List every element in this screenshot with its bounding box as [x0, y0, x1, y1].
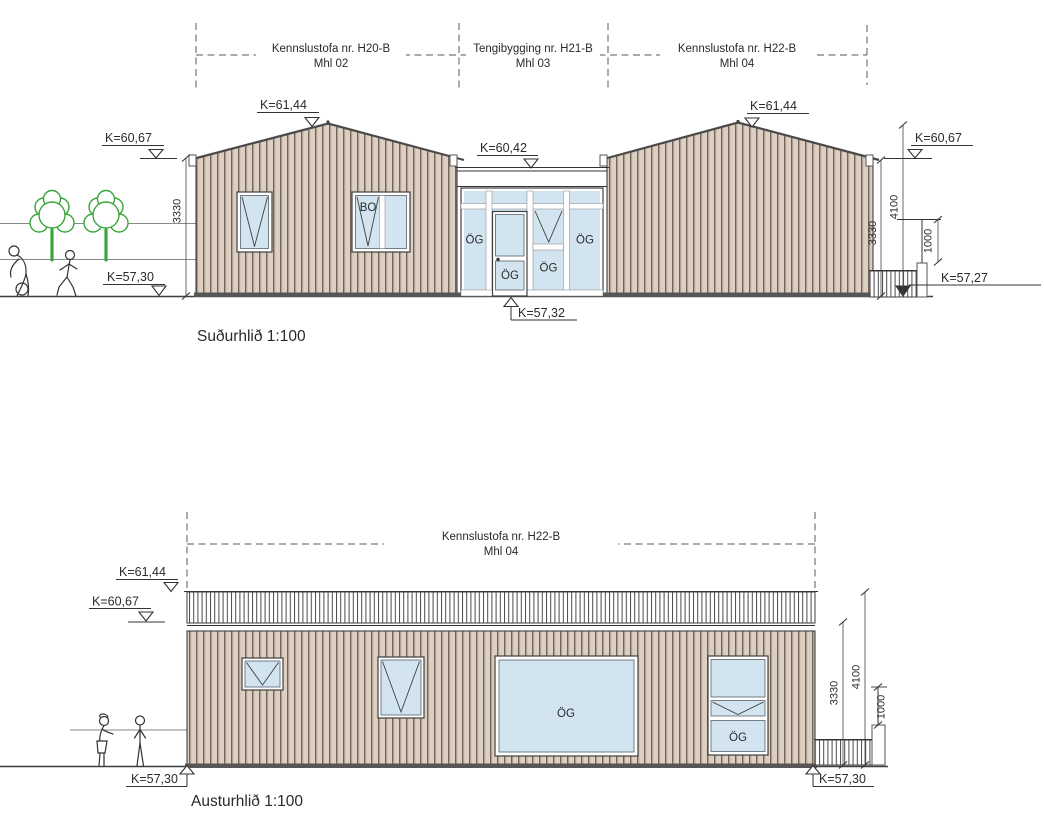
- dimension-label: 3330: [172, 199, 184, 223]
- tree-figure: [30, 191, 74, 261]
- east-elevation-title: Austurhlið 1:100: [191, 793, 303, 810]
- level-label: K=57,30: [131, 772, 178, 786]
- dimension-label: 1000: [876, 695, 888, 719]
- section-label-h22b: Kennslustofa nr. H22-B: [442, 531, 561, 543]
- east-building: ÖG ÖG: [184, 592, 818, 766]
- parapet-band: [187, 592, 815, 623]
- section-label-h22b: Kennslustofa nr. H22-B: [678, 43, 797, 55]
- glazing-label: ÖG: [576, 235, 594, 247]
- level-label: K=60,42: [480, 141, 527, 155]
- door-handle: [496, 258, 499, 261]
- entrance-door: [493, 212, 528, 297]
- section-label-h21b: Tengibygging nr. H21-B: [473, 43, 593, 55]
- south-elevation-title: Suðurhlið 1:100: [197, 328, 306, 345]
- window: ÖG: [708, 656, 768, 755]
- section-sublabel-mhl04: Mhl 04: [484, 546, 519, 558]
- dimension-label: 3330: [867, 221, 879, 245]
- window: [242, 658, 283, 690]
- glazing-label: ÖG: [501, 270, 519, 282]
- child-figure: [9, 246, 29, 296]
- child-figure: [97, 714, 113, 766]
- east-section-grid: Kennslustofa nr. H22-B Mhl 04: [187, 512, 815, 590]
- level-label: K=61,44: [260, 98, 307, 112]
- level-label: K=60,67: [105, 131, 152, 145]
- section-label-h20b: Kennslustofa nr. H20-B: [272, 43, 391, 55]
- south-right-building: [600, 120, 879, 296]
- level-label: K=60,67: [915, 131, 962, 145]
- section-sublabel-mhl04: Mhl 04: [720, 58, 755, 70]
- glazing-label: ÖG: [729, 732, 747, 744]
- level-label: K=61,44: [119, 565, 166, 579]
- south-connector: ÖG ÖG ÖG ÖG: [455, 168, 609, 297]
- dimension-label: 3330: [829, 681, 841, 705]
- level-label: K=61,44: [750, 99, 797, 113]
- east-ramp-railing: [814, 687, 885, 765]
- elevation-drawings: Kennslustofa nr. H20-B Mhl 02 Tengibyggi…: [0, 0, 1044, 833]
- dimension-label: 4100: [851, 665, 863, 689]
- east-elevation: Kennslustofa nr. H22-B Mhl 04: [0, 512, 888, 810]
- dimension-label: 4100: [889, 195, 901, 219]
- glazing-label: ÖG: [466, 235, 484, 247]
- south-section-grid: Kennslustofa nr. H20-B Mhl 02 Tengibyggi…: [196, 23, 867, 88]
- level-label: K=57,30: [819, 772, 866, 786]
- glazing-label: ÖG: [540, 263, 558, 275]
- east-base-band: [185, 764, 817, 769]
- south-left-building: BO: [189, 120, 464, 296]
- level-label: K=60,67: [92, 595, 139, 609]
- window-label-bo: BO: [360, 202, 377, 214]
- tree-figure: [84, 191, 128, 261]
- window-large: ÖG: [495, 656, 638, 756]
- window: BO: [352, 192, 410, 252]
- child-figure: [135, 716, 146, 766]
- level-label: K=57,30: [107, 270, 154, 284]
- dimension-label: 1000: [923, 229, 935, 253]
- level-label: K=57,27: [941, 271, 988, 285]
- section-sublabel-mhl03: Mhl 03: [516, 58, 551, 70]
- window: [378, 657, 424, 718]
- glazing-label: ÖG: [557, 708, 575, 720]
- architectural-drawing-sheet: Kennslustofa nr. H20-B Mhl 02 Tengibyggi…: [0, 0, 1044, 833]
- child-figure: [57, 251, 77, 297]
- south-elevation: Kennslustofa nr. H20-B Mhl 02 Tengibyggi…: [0, 23, 1041, 345]
- level-label: K=57,32: [518, 306, 565, 320]
- section-sublabel-mhl02: Mhl 02: [314, 58, 349, 70]
- window: [237, 192, 272, 252]
